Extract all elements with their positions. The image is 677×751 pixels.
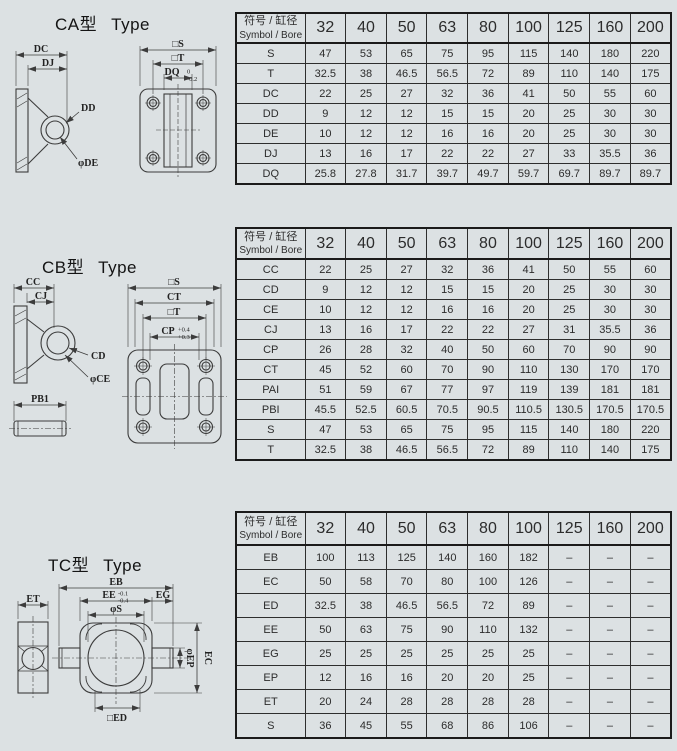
value-cell: 181 — [590, 380, 631, 400]
value-cell: 16 — [468, 300, 509, 320]
symbol-cell: DJ — [236, 144, 305, 164]
symbol-cell: DD — [236, 104, 305, 124]
symbol-cell: DE — [236, 124, 305, 144]
value-cell: 22 — [427, 320, 468, 340]
table-row: CJ1316172222273135.536 — [236, 320, 671, 340]
value-cell: 160 — [468, 545, 509, 570]
value-cell: 28 — [346, 340, 387, 360]
value-cell: 27 — [508, 144, 549, 164]
value-cell: 60 — [630, 84, 671, 104]
symbol-cell: DC — [236, 84, 305, 104]
value-cell: 45 — [305, 360, 346, 380]
table-row: EE50637590110132––– — [236, 618, 671, 642]
table-row: DC222527323641505560 — [236, 84, 671, 104]
value-cell: – — [630, 618, 671, 642]
symbol-cell: CP — [236, 340, 305, 360]
value-cell: 60 — [630, 259, 671, 280]
bore-col-header: 160 — [590, 13, 631, 43]
value-cell: 140 — [590, 440, 631, 461]
bore-col-header: 200 — [630, 13, 671, 43]
bore-col-header: 40 — [346, 228, 387, 259]
bore-col-header: 32 — [305, 228, 346, 259]
symbol-cell: EP — [236, 666, 305, 690]
value-cell: 59 — [346, 380, 387, 400]
value-cell: 180 — [590, 43, 631, 64]
value-cell: 55 — [590, 84, 631, 104]
table-row: CE101212161620253030 — [236, 300, 671, 320]
value-cell: 63 — [346, 618, 387, 642]
dim-label-pb1: PB1 — [31, 394, 49, 405]
value-cell: 50 — [305, 570, 346, 594]
value-cell: – — [630, 666, 671, 690]
value-cell: 22 — [305, 259, 346, 280]
value-cell: 27 — [386, 259, 427, 280]
value-cell: 32 — [386, 340, 427, 360]
value-cell: – — [549, 594, 590, 618]
value-cell: 25 — [346, 642, 387, 666]
value-cell: 67 — [386, 380, 427, 400]
value-cell: 25.8 — [305, 164, 346, 185]
value-cell: 30 — [630, 300, 671, 320]
value-cell: 119 — [508, 380, 549, 400]
dim-label-ec: EC — [202, 651, 213, 665]
value-cell: 33 — [549, 144, 590, 164]
dim-label-cb-s: □S — [168, 277, 180, 288]
value-cell: 106 — [508, 714, 549, 739]
table-row: DD91212151520253030 — [236, 104, 671, 124]
value-cell: 89 — [508, 440, 549, 461]
value-cell: 90 — [630, 340, 671, 360]
bore-col-header: 125 — [549, 228, 590, 259]
value-cell: 25 — [549, 280, 590, 300]
value-cell: 170.5 — [630, 400, 671, 420]
value-cell: – — [549, 642, 590, 666]
symbol-bore-header: 符号 / 缸径Symbol / Bore — [236, 512, 305, 545]
value-cell: 31 — [549, 320, 590, 340]
header-row: 符号 / 缸径Symbol / Bore32405063801001251602… — [236, 512, 671, 545]
bore-col-header: 80 — [468, 228, 509, 259]
value-cell: 89.7 — [590, 164, 631, 185]
header-en: Symbol / Bore — [237, 29, 305, 42]
value-cell: 56.5 — [427, 440, 468, 461]
value-cell: 20 — [427, 666, 468, 690]
value-cell: 31.7 — [386, 164, 427, 185]
section-title-cb-en: Type — [98, 258, 137, 277]
value-cell: 60.5 — [386, 400, 427, 420]
value-cell: – — [630, 570, 671, 594]
symbol-cell: ET — [236, 690, 305, 714]
value-cell: 65 — [386, 43, 427, 64]
header-row: 符号 / 缸径Symbol / Bore32405063801001251602… — [236, 228, 671, 259]
value-cell: 68 — [427, 714, 468, 739]
value-cell: 10 — [305, 300, 346, 320]
value-cell: 10 — [305, 124, 346, 144]
ca-side-view — [16, 89, 69, 172]
value-cell: – — [549, 545, 590, 570]
section-title-ca: CA型Type — [55, 10, 150, 35]
value-cell: 80 — [427, 570, 468, 594]
value-cell: 53 — [346, 43, 387, 64]
value-cell: 30 — [630, 280, 671, 300]
value-cell: 130.5 — [549, 400, 590, 420]
value-cell: 20 — [508, 300, 549, 320]
value-cell: 25 — [549, 104, 590, 124]
tc-type-drawing: ET EB EE -0.1 -0.4 EG φS φEP EC □ED — [6, 542, 231, 748]
value-cell: 140 — [590, 64, 631, 84]
value-cell: 22 — [305, 84, 346, 104]
bore-col-header: 100 — [508, 512, 549, 545]
value-cell: 110 — [508, 360, 549, 380]
symbol-cell: CE — [236, 300, 305, 320]
value-cell: 16 — [468, 124, 509, 144]
dim-label-eg: EG — [156, 590, 171, 601]
symbol-cell: S — [236, 714, 305, 739]
value-cell: 28 — [386, 690, 427, 714]
value-cell: 90 — [427, 618, 468, 642]
value-cell: 12 — [346, 280, 387, 300]
value-cell: 170 — [590, 360, 631, 380]
value-cell: 45.5 — [305, 400, 346, 420]
section-title-ca-en: Type — [111, 15, 150, 34]
value-cell: 16 — [346, 320, 387, 340]
value-cell: 17 — [386, 144, 427, 164]
bore-col-header: 63 — [427, 228, 468, 259]
value-cell: 90 — [590, 340, 631, 360]
value-cell: 100 — [305, 545, 346, 570]
value-cell: 170 — [630, 360, 671, 380]
value-cell: 70 — [427, 360, 468, 380]
dim-label-ed: □ED — [107, 713, 127, 724]
value-cell: 175 — [630, 64, 671, 84]
value-cell: 220 — [630, 420, 671, 440]
value-cell: 20 — [508, 124, 549, 144]
header-row: 符号 / 缸径Symbol / Bore32405063801001251602… — [236, 13, 671, 43]
value-cell: 16 — [346, 144, 387, 164]
value-cell: 75 — [427, 43, 468, 64]
value-cell: 50 — [305, 618, 346, 642]
value-cell: – — [590, 618, 631, 642]
symbol-cell: EB — [236, 545, 305, 570]
table-row: EC50587080100126––– — [236, 570, 671, 594]
value-cell: 26 — [305, 340, 346, 360]
cb-type-drawing: CC CJ CD φCE PB1 □S CT □T CP +0.4 +0.3 — [8, 276, 230, 472]
value-cell: 110 — [549, 64, 590, 84]
value-cell: 32 — [427, 259, 468, 280]
symbol-cell: T — [236, 64, 305, 84]
value-cell: 86 — [468, 714, 509, 739]
value-cell: 97 — [468, 380, 509, 400]
value-cell: 25 — [468, 642, 509, 666]
value-cell: 58 — [346, 570, 387, 594]
dim-label-s: □S — [172, 39, 184, 50]
value-cell: 90 — [468, 360, 509, 380]
tc-side-view — [18, 616, 48, 700]
value-cell: – — [590, 642, 631, 666]
dim-label-ce: φCE — [90, 374, 110, 385]
value-cell: 25 — [549, 300, 590, 320]
value-cell: 20 — [508, 280, 549, 300]
bore-col-header: 160 — [590, 512, 631, 545]
section-title-cb-cn: CB型 — [42, 258, 84, 277]
symbol-cell: S — [236, 420, 305, 440]
value-cell: 139 — [549, 380, 590, 400]
symbol-cell: CD — [236, 280, 305, 300]
ca-front-view — [140, 84, 216, 177]
symbol-bore-header: 符号 / 缸径Symbol / Bore — [236, 13, 305, 43]
dim-label-de: φDE — [78, 158, 98, 169]
symbol-bore-header: 符号 / 缸径Symbol / Bore — [236, 228, 305, 259]
value-cell: 13 — [305, 320, 346, 340]
bore-col-header: 200 — [630, 228, 671, 259]
value-cell: – — [549, 618, 590, 642]
value-cell: 27.8 — [346, 164, 387, 185]
bore-col-header: 200 — [630, 512, 671, 545]
value-cell: 9 — [305, 104, 346, 124]
dim-label-cc: CC — [26, 277, 40, 288]
bore-col-header: 50 — [386, 13, 427, 43]
value-cell: 95 — [468, 43, 509, 64]
dim-label-ct: CT — [167, 292, 181, 303]
value-cell: 16 — [427, 300, 468, 320]
dim-label-dj: DJ — [42, 58, 54, 69]
header-en: Symbol / Bore — [237, 244, 305, 257]
value-cell: 25 — [386, 642, 427, 666]
header-cn: 符号 / 缸径 — [237, 515, 305, 529]
value-cell: 20 — [508, 104, 549, 124]
bore-col-header: 50 — [386, 228, 427, 259]
value-cell: 45 — [346, 714, 387, 739]
value-cell: 55 — [590, 259, 631, 280]
value-cell: 95 — [468, 420, 509, 440]
dim-label-et: ET — [26, 594, 40, 605]
value-cell: 28 — [468, 690, 509, 714]
value-cell: 30 — [630, 124, 671, 144]
value-cell: – — [590, 594, 631, 618]
value-cell: 50 — [549, 84, 590, 104]
value-cell: 35.5 — [590, 320, 631, 340]
value-cell: 125 — [386, 545, 427, 570]
table-row: CP262832405060709090 — [236, 340, 671, 360]
table-row: PBI45.552.560.570.590.5110.5130.5170.517… — [236, 400, 671, 420]
bore-col-header: 63 — [427, 13, 468, 43]
section-title-cb: CB型Type — [42, 253, 137, 278]
value-cell: 132 — [508, 618, 549, 642]
value-cell: 46.5 — [386, 440, 427, 461]
value-cell: 30 — [590, 300, 631, 320]
value-cell: 28 — [508, 690, 549, 714]
value-cell: 36 — [630, 320, 671, 340]
value-cell: 15 — [468, 104, 509, 124]
table-row: S4753657595115140180220 — [236, 43, 671, 64]
value-cell: 38 — [346, 440, 387, 461]
value-cell: 32 — [427, 84, 468, 104]
value-cell: 12 — [346, 104, 387, 124]
value-cell: 12 — [346, 300, 387, 320]
value-cell: 12 — [386, 280, 427, 300]
value-cell: 25 — [508, 642, 549, 666]
value-cell: 55 — [386, 714, 427, 739]
value-cell: 72 — [468, 64, 509, 84]
tc-main-view — [52, 617, 192, 704]
dim-label-cp: CP — [161, 326, 174, 337]
value-cell: 110 — [549, 440, 590, 461]
value-cell: – — [549, 690, 590, 714]
table-row: EB100113125140160182––– — [236, 545, 671, 570]
value-cell: 126 — [508, 570, 549, 594]
value-cell: – — [630, 545, 671, 570]
value-cell: 16 — [386, 666, 427, 690]
table-row: EG252525252525––– — [236, 642, 671, 666]
header-cn: 符号 / 缸径 — [237, 230, 305, 244]
value-cell: 38 — [346, 64, 387, 84]
value-cell: 12 — [386, 300, 427, 320]
value-cell: 70 — [386, 570, 427, 594]
value-cell: 27 — [386, 84, 427, 104]
value-cell: 115 — [508, 420, 549, 440]
value-cell: 13 — [305, 144, 346, 164]
value-cell: 50 — [468, 340, 509, 360]
value-cell: 32.5 — [305, 594, 346, 618]
dim-label-tc-s: φS — [110, 604, 122, 615]
symbol-cell: EG — [236, 642, 305, 666]
table-row: DJ1316172222273335.536 — [236, 144, 671, 164]
value-cell: 70 — [549, 340, 590, 360]
value-cell: 70.5 — [427, 400, 468, 420]
value-cell: – — [590, 714, 631, 739]
bore-col-header: 80 — [468, 512, 509, 545]
value-cell: – — [630, 642, 671, 666]
dim-label-dd: DD — [81, 103, 95, 114]
symbol-cell: CC — [236, 259, 305, 280]
dim-label-ee: EE — [102, 590, 116, 601]
bore-col-header: 63 — [427, 512, 468, 545]
value-cell: 25 — [346, 259, 387, 280]
value-cell: 25 — [305, 642, 346, 666]
symbol-cell: EC — [236, 570, 305, 594]
table-row: ED32.53846.556.57289––– — [236, 594, 671, 618]
value-cell: 9 — [305, 280, 346, 300]
value-cell: 47 — [305, 43, 346, 64]
bore-col-header: 100 — [508, 228, 549, 259]
value-cell: 60 — [386, 360, 427, 380]
value-cell: 15 — [427, 104, 468, 124]
dim-label-ep: φEP — [184, 648, 195, 667]
dim-label-dq-tol-lower: -0.2 — [187, 76, 197, 83]
value-cell: 17 — [386, 320, 427, 340]
value-cell: 89 — [508, 64, 549, 84]
table-row: EP121616202025––– — [236, 666, 671, 690]
header-en: Symbol / Bore — [237, 529, 305, 542]
value-cell: 16 — [346, 666, 387, 690]
value-cell: 25 — [508, 666, 549, 690]
table-row: DE101212161620253030 — [236, 124, 671, 144]
value-cell: 90.5 — [468, 400, 509, 420]
value-cell: 72 — [468, 594, 509, 618]
table-row: T32.53846.556.57289110140175 — [236, 64, 671, 84]
value-cell: 56.5 — [427, 64, 468, 84]
value-cell: 15 — [427, 280, 468, 300]
ca-type-drawing: DC DJ DD φDE □S □T DQ 0 -0.2 — [8, 36, 230, 188]
value-cell: 100 — [468, 570, 509, 594]
value-cell: 30 — [590, 280, 631, 300]
table-row: S3645556886106––– — [236, 714, 671, 739]
value-cell: 32.5 — [305, 64, 346, 84]
table-row: CT4552607090110130170170 — [236, 360, 671, 380]
table-row: S4753657595115140180220 — [236, 420, 671, 440]
table-row: ET202428282828––– — [236, 690, 671, 714]
dim-label-cb-t: □T — [168, 307, 181, 318]
value-cell: 35.5 — [590, 144, 631, 164]
value-cell: 59.7 — [508, 164, 549, 185]
value-cell: 30 — [590, 104, 631, 124]
value-cell: 12 — [346, 124, 387, 144]
value-cell: 170.5 — [590, 400, 631, 420]
dim-label-dc: DC — [34, 44, 48, 55]
value-cell: 181 — [630, 380, 671, 400]
value-cell: 115 — [508, 43, 549, 64]
value-cell: 25 — [549, 124, 590, 144]
value-cell: 12 — [386, 124, 427, 144]
value-cell: – — [549, 570, 590, 594]
value-cell: – — [630, 714, 671, 739]
dim-label-cd: CD — [91, 351, 105, 362]
value-cell: 50 — [549, 259, 590, 280]
value-cell: 140 — [549, 43, 590, 64]
value-cell: – — [549, 714, 590, 739]
symbol-cell: CJ — [236, 320, 305, 340]
ca-dimension-table: 符号 / 缸径Symbol / Bore32405063801001251602… — [235, 12, 672, 185]
value-cell: 110 — [468, 618, 509, 642]
value-cell: 40 — [427, 340, 468, 360]
value-cell: 180 — [590, 420, 631, 440]
value-cell: – — [549, 666, 590, 690]
value-cell: 53 — [346, 420, 387, 440]
cb-dimension-table: 符号 / 缸径Symbol / Bore32405063801001251602… — [235, 227, 672, 461]
value-cell: – — [590, 545, 631, 570]
tc-dimension-table: 符号 / 缸径Symbol / Bore32405063801001251602… — [235, 511, 672, 739]
value-cell: 75 — [427, 420, 468, 440]
value-cell: 30 — [590, 124, 631, 144]
bore-col-header: 32 — [305, 512, 346, 545]
header-cn: 符号 / 缸径 — [237, 14, 305, 28]
value-cell: 130 — [549, 360, 590, 380]
value-cell: 69.7 — [549, 164, 590, 185]
value-cell: 36 — [305, 714, 346, 739]
value-cell: 30 — [630, 104, 671, 124]
symbol-cell: DQ — [236, 164, 305, 185]
value-cell: 28 — [427, 690, 468, 714]
dim-label-cj: CJ — [35, 291, 47, 302]
value-cell: 75 — [386, 618, 427, 642]
table-row: CC222527323641505560 — [236, 259, 671, 280]
value-cell: 60 — [508, 340, 549, 360]
section-title-ca-cn: CA型 — [55, 15, 97, 34]
table-row: CD91212151520253030 — [236, 280, 671, 300]
bore-col-header: 125 — [549, 13, 590, 43]
value-cell: 52 — [346, 360, 387, 380]
dim-label-cp-tol-upper: +0.4 — [178, 327, 191, 334]
bore-col-header: 160 — [590, 228, 631, 259]
value-cell: 12 — [305, 666, 346, 690]
value-cell: – — [590, 666, 631, 690]
value-cell: – — [590, 570, 631, 594]
value-cell: 175 — [630, 440, 671, 461]
dim-label-dq-tol-upper: 0 — [187, 69, 190, 76]
value-cell: 140 — [549, 420, 590, 440]
table-row: T32.53846.556.57289110140175 — [236, 440, 671, 461]
value-cell: 140 — [427, 545, 468, 570]
bore-col-header: 100 — [508, 13, 549, 43]
